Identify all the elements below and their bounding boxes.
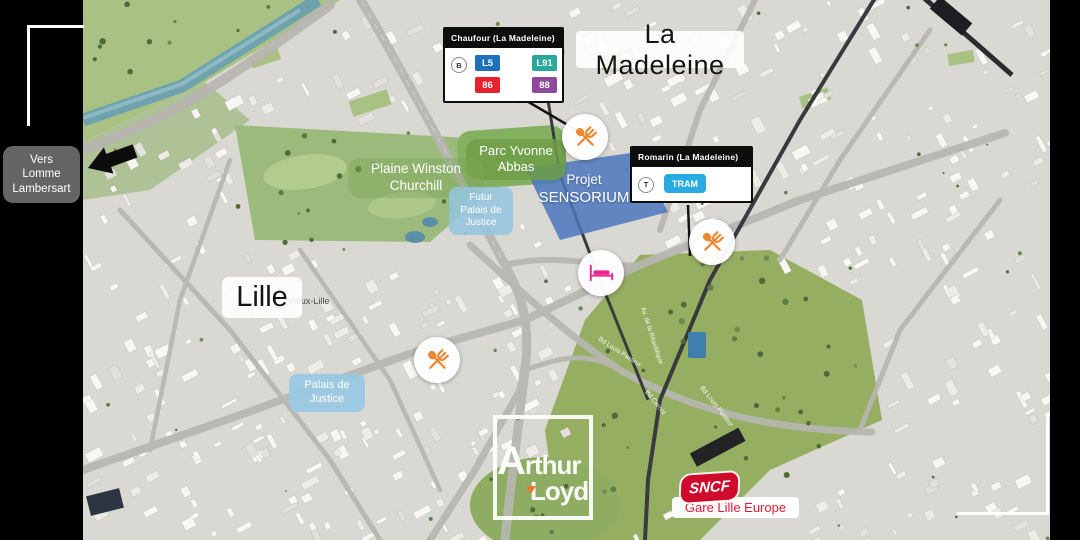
city-label-lille: Lille <box>222 277 302 318</box>
map-slide: Bd Louis Pasteur Av. de la République Bd… <box>0 0 1080 540</box>
frame-bracket-bottom-right <box>1046 414 1049 515</box>
arthur-loyd-accent-triangle <box>526 486 536 494</box>
sncf-logo: SNCF <box>681 472 739 503</box>
project-label-sensorium: Projet SENSORIUM <box>528 172 640 208</box>
tram-badge: TRAM <box>664 174 706 193</box>
restaurant-icon <box>699 229 726 256</box>
frame-bracket-top-left <box>27 25 84 28</box>
transit-card-romarin: Romarin (La Madeleine) T TRAM <box>630 146 753 203</box>
frame-bracket-top-left <box>27 25 30 126</box>
restaurant-marker <box>689 219 735 265</box>
restaurant-marker <box>562 114 608 160</box>
hotel-marker <box>578 250 624 296</box>
bus-icon: B <box>451 57 467 73</box>
frame-bracket-bottom-right <box>957 512 1049 515</box>
direction-sign-lomme-lambersart: Vers Lomme Lambersart <box>3 146 80 203</box>
restaurant-icon <box>572 124 599 151</box>
bus-line-badge: 86 <box>475 77 500 93</box>
arthur-loyd-logo: Arthur Loyd <box>497 443 588 504</box>
restaurant-marker <box>414 337 460 383</box>
label-futur-palais-de-justice: Futur Palais de Justice <box>449 187 513 235</box>
bus-line-badge: 88 <box>532 77 557 93</box>
bed-icon <box>589 264 614 282</box>
city-label-la-madeleine: La Madeleine <box>576 31 744 68</box>
restaurant-icon <box>424 347 451 374</box>
label-palais-de-justice: Palais de Justice <box>289 374 365 412</box>
transit-card-title: Romarin (La Madeleine) <box>632 148 751 167</box>
transit-card-title: Chaufour (La Madeleine) <box>445 29 562 48</box>
transit-card-chaufour: Chaufour (La Madeleine) B L5 L91 86 88 <box>443 27 564 103</box>
bus-line-badge: L91 <box>532 55 557 71</box>
tram-icon: T <box>638 177 654 193</box>
bus-line-badge: L5 <box>475 55 500 71</box>
